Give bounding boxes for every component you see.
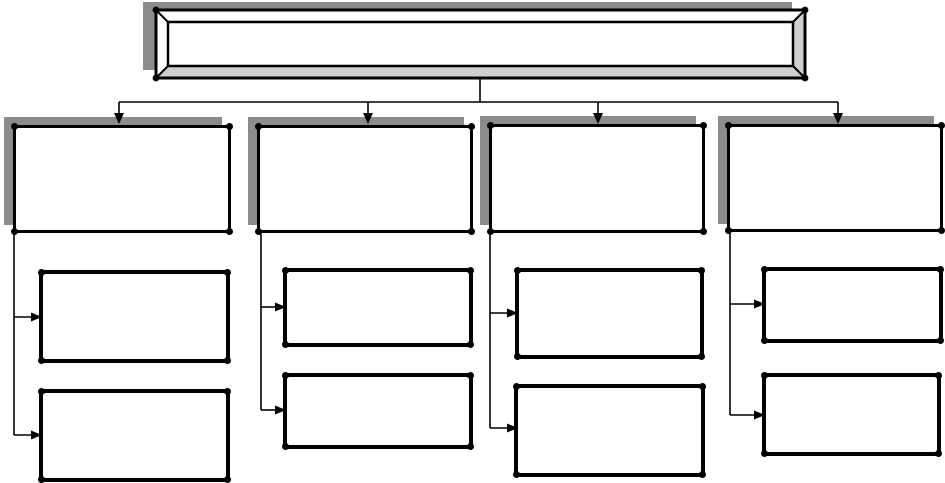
corner-dot: [698, 267, 705, 274]
corner-dot: [224, 357, 231, 364]
corner-dot: [513, 383, 520, 390]
corner-dot: [700, 228, 707, 235]
corner-dot: [938, 122, 945, 129]
corner-dot: [282, 372, 289, 379]
branch-node-1[interactable]: [13, 125, 231, 233]
corner-dot: [514, 353, 521, 360]
corner-dot: [468, 123, 475, 130]
corner-dot: [761, 450, 768, 457]
corner-dot: [38, 357, 45, 364]
corner-dot: [699, 383, 706, 390]
corner-dot: [725, 122, 732, 129]
corner-dot: [725, 227, 732, 234]
corner-dot: [513, 471, 520, 478]
corner-dot: [699, 471, 706, 478]
corner-dot: [467, 267, 474, 274]
corner-dot: [38, 476, 45, 483]
corner-dot: [226, 123, 233, 130]
arrowhead-branch-3: [593, 113, 603, 124]
corner-dot: [467, 372, 474, 379]
org-chart-canvas: [0, 0, 945, 483]
arrowhead-branch-2: [363, 113, 373, 124]
branch-node-2[interactable]: [257, 125, 473, 233]
corner-dot: [938, 227, 945, 234]
corner-dot: [468, 228, 475, 235]
child-node-3-1[interactable]: [515, 268, 704, 359]
corner-dot: [698, 353, 705, 360]
connector-branch3-children: [490, 233, 507, 428]
corner-dot: [255, 123, 262, 130]
corner-dot: [935, 450, 942, 457]
down-arrowheads: [114, 113, 843, 124]
corner-dot: [11, 123, 18, 130]
child-node-1-1[interactable]: [39, 270, 230, 363]
corner-dot: [226, 228, 233, 235]
corner-dot: [255, 228, 262, 235]
connector-root-to-branches: [119, 78, 838, 114]
corner-dot: [38, 388, 45, 395]
child-node-2-2[interactable]: [283, 373, 473, 449]
child-node-4-1[interactable]: [762, 267, 943, 343]
corner-dot: [935, 372, 942, 379]
corner-dot: [761, 266, 768, 273]
arrowhead-branch-1: [114, 113, 124, 124]
corner-dot: [514, 267, 521, 274]
arrowhead-branch-4: [833, 113, 843, 124]
corner-dot: [937, 266, 944, 273]
corner-dot: [38, 269, 45, 276]
connector-branch1-children: [14, 233, 32, 435]
corner-dot: [282, 341, 289, 348]
branch-node-3[interactable]: [489, 124, 705, 233]
corner-dot: [700, 122, 707, 129]
corner-dot: [467, 443, 474, 450]
child-node-2-1[interactable]: [283, 268, 473, 347]
corner-dot: [937, 337, 944, 344]
child-node-3-2[interactable]: [514, 384, 705, 477]
connector-branch4-children: [730, 232, 754, 415]
root-node[interactable]: [156, 10, 805, 78]
corner-dot: [282, 443, 289, 450]
connector-branch2-children: [261, 233, 275, 410]
corner-dot: [282, 267, 289, 274]
child-node-4-2[interactable]: [762, 373, 941, 456]
corner-dot: [487, 122, 494, 129]
child-node-1-2[interactable]: [39, 389, 230, 482]
corner-dot: [224, 476, 231, 483]
corner-dot: [761, 372, 768, 379]
corner-dot: [487, 228, 494, 235]
corner-dot: [224, 269, 231, 276]
branch-node-4[interactable]: [727, 124, 943, 232]
corner-dot: [224, 388, 231, 395]
corner-dot: [761, 337, 768, 344]
corner-dot: [11, 228, 18, 235]
corner-dot: [467, 341, 474, 348]
